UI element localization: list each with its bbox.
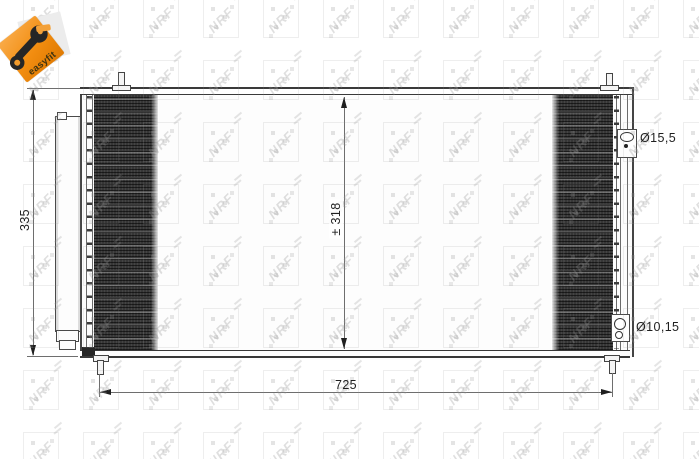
left-tube-ticks bbox=[87, 96, 92, 349]
nrf-watermark-tile: NRF bbox=[143, 432, 179, 459]
nrf-watermark-tile: NRF bbox=[203, 370, 239, 410]
nrf-watermark-tile: NRF bbox=[23, 370, 59, 410]
mounting-pin-bottom-right bbox=[609, 360, 616, 374]
nrf-watermark-tile: NRF bbox=[683, 0, 699, 38]
mounting-pin-base-top-left bbox=[112, 85, 131, 91]
mounting-pin-bottom-left bbox=[97, 360, 104, 375]
nrf-watermark-tile: NRF bbox=[683, 60, 699, 100]
nrf-watermark-tile: NRF bbox=[683, 246, 699, 286]
dim-725-extension-right bbox=[612, 373, 613, 397]
core-middle-highlight bbox=[158, 93, 552, 350]
dim-335-extension-bottom bbox=[27, 356, 78, 357]
nrf-watermark-tile: NRF bbox=[143, 370, 179, 410]
dim-label-318: ± 318 bbox=[329, 199, 343, 238]
dim-label-725: 725 bbox=[335, 378, 357, 392]
receiver-drier bbox=[55, 116, 81, 332]
condenser-top-bar bbox=[80, 87, 632, 95]
nrf-watermark-tile: NRF bbox=[263, 432, 299, 459]
nrf-watermark-tile: NRF bbox=[383, 0, 419, 38]
dim-335-arrow-bottom bbox=[30, 345, 36, 356]
nrf-watermark-tile: NRF bbox=[383, 432, 419, 459]
nrf-watermark-tile: NRF bbox=[23, 432, 59, 459]
nrf-watermark-tile: NRF bbox=[563, 432, 599, 459]
dim-335-arrow-top bbox=[30, 89, 36, 100]
core-fin-block-left bbox=[92, 93, 158, 350]
dim-335-line bbox=[33, 90, 34, 355]
nrf-watermark-tile: NRF bbox=[323, 0, 359, 38]
receiver-drier-taper-lower bbox=[59, 340, 76, 350]
nrf-watermark-tile: NRF bbox=[83, 0, 119, 38]
nrf-watermark-tile: NRF bbox=[83, 432, 119, 459]
dim-label-outlet-diameter: Ø10,15 bbox=[636, 320, 679, 334]
mounting-pin-base-top-right bbox=[600, 85, 619, 91]
dim-318-line bbox=[344, 97, 345, 349]
nrf-watermark-tile: NRF bbox=[503, 0, 539, 38]
nrf-watermark-tile: NRF bbox=[443, 370, 479, 410]
nrf-watermark-tile: NRF bbox=[683, 432, 699, 459]
nrf-watermark-tile: NRF bbox=[623, 0, 659, 38]
receiver-drier-top-notch bbox=[57, 112, 67, 120]
nrf-watermark-tile: NRF bbox=[683, 308, 699, 348]
dim-318-arrow-bottom bbox=[341, 338, 347, 349]
nrf-watermark-tile: NRF bbox=[623, 432, 659, 459]
nrf-watermark-tile: NRF bbox=[563, 370, 599, 410]
inlet-fitting bbox=[617, 129, 637, 158]
nrf-watermark-tile: NRF bbox=[683, 184, 699, 224]
nrf-watermark-tile: NRF bbox=[683, 122, 699, 162]
nrf-watermark-tile: NRF bbox=[23, 246, 59, 286]
outlet-bolt-circle bbox=[615, 331, 623, 339]
outlet-port-circle bbox=[614, 318, 626, 330]
condenser-bottom-bar bbox=[80, 350, 630, 358]
nrf-watermark-tile: NRF bbox=[383, 370, 419, 410]
nrf-watermark-tile: NRF bbox=[443, 0, 479, 38]
dim-725-arrow-left bbox=[100, 389, 111, 395]
nrf-watermark-tile: NRF bbox=[623, 370, 659, 410]
nrf-watermark-tile: NRF bbox=[23, 122, 59, 162]
nrf-watermark-tile: NRF bbox=[503, 432, 539, 459]
nrf-watermark-tile: NRF bbox=[203, 432, 239, 459]
outlet-fitting bbox=[611, 314, 630, 342]
nrf-watermark-tile: NRF bbox=[203, 0, 239, 38]
inlet-port-oval bbox=[620, 132, 634, 142]
nrf-watermark-tile: NRF bbox=[143, 0, 179, 38]
dim-label-335: 335 bbox=[18, 209, 32, 231]
nrf-watermark-tile: NRF bbox=[503, 370, 539, 410]
dim-725-arrow-right bbox=[601, 389, 612, 395]
nrf-watermark-tile: NRF bbox=[263, 370, 299, 410]
dim-label-inlet-diameter: Ø15,5 bbox=[640, 131, 676, 145]
nrf-watermark-tile: NRF bbox=[263, 0, 299, 38]
nrf-watermark-tile: NRF bbox=[323, 432, 359, 459]
dim-725-line bbox=[100, 392, 612, 393]
nrf-watermark-tile: NRF bbox=[443, 432, 479, 459]
nrf-watermark-tile: NRF bbox=[563, 0, 599, 38]
nrf-watermark-tile: NRF bbox=[683, 370, 699, 410]
dim-318-arrow-top bbox=[341, 97, 347, 108]
easyfit-badge: easyfit bbox=[2, 10, 72, 82]
product-drawing-condenser: NRFNRFNRFNRFNRFNRFNRFNRFNRFNRFNRFNRFNRFN… bbox=[0, 0, 699, 459]
nrf-watermark-tile: NRF bbox=[23, 308, 59, 348]
inlet-bolt-dot bbox=[624, 144, 628, 148]
core-fin-block-right bbox=[552, 93, 613, 350]
